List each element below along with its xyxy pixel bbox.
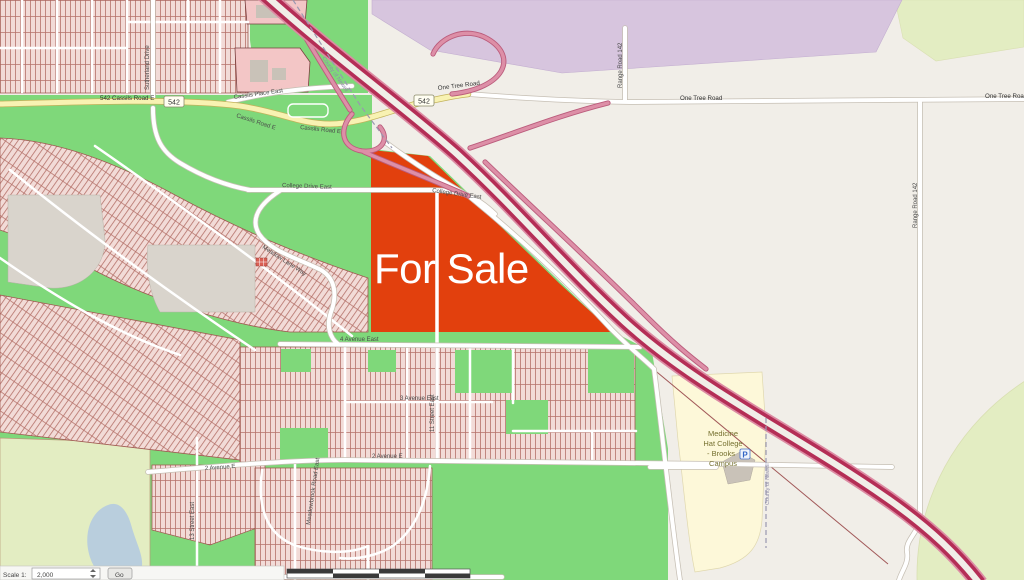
sports-field-icon — [256, 258, 267, 266]
shield-label: 542 — [168, 100, 180, 107]
scale-label: Scale 1: — [3, 572, 27, 579]
map-viewport: 542 542 542 Cassils Road E Cassils Place… — [0, 0, 1024, 580]
college-name-line1: Medicine — [708, 429, 738, 438]
road-label-2-avenue-e: 2 Avenue E — [372, 454, 403, 460]
road-label-one-tree-3: One Tree Road — [985, 93, 1024, 100]
road-label-11-street: 11 Street East — [430, 394, 436, 432]
road-label-13-street: 13 Street East — [190, 502, 196, 540]
green-median-island — [288, 104, 328, 117]
parking-icon: P — [740, 449, 750, 460]
route-shield-542-east: 542 — [414, 95, 434, 106]
college-name-line2: Hat College — [703, 439, 742, 448]
road-label-one-tree-2: One Tree Road — [680, 95, 723, 102]
go-button-label: Go — [115, 572, 124, 579]
for-sale-label: For Sale — [374, 245, 529, 292]
scale-select[interactable]: 2,000 — [32, 568, 100, 579]
road-label-range-road-s: Range Road 142 — [913, 182, 919, 228]
road-label-range-road-n: Range Road 142 — [618, 42, 624, 88]
map-canvas[interactable]: 542 542 542 Cassils Road E Cassils Place… — [0, 0, 1024, 580]
college-name-line3: - Brooks — [707, 449, 735, 458]
road-label-cassils-542: 542 Cassils Road E — [100, 95, 154, 102]
scale-value: 2,000 — [37, 572, 54, 579]
road-label-sutherland: Sutherland Drive — [145, 45, 151, 90]
shield-label: 542 — [418, 99, 430, 106]
go-button[interactable]: Go — [108, 568, 132, 579]
parking-letter: P — [742, 451, 748, 460]
route-shield-542-west: 542 — [164, 96, 184, 107]
road-label-4-avenue: 4 Avenue East — [340, 337, 379, 343]
scale-bar — [287, 569, 470, 578]
college-name-line4: Campus — [709, 459, 737, 468]
county-label-2: County of Newell — [765, 463, 771, 505]
